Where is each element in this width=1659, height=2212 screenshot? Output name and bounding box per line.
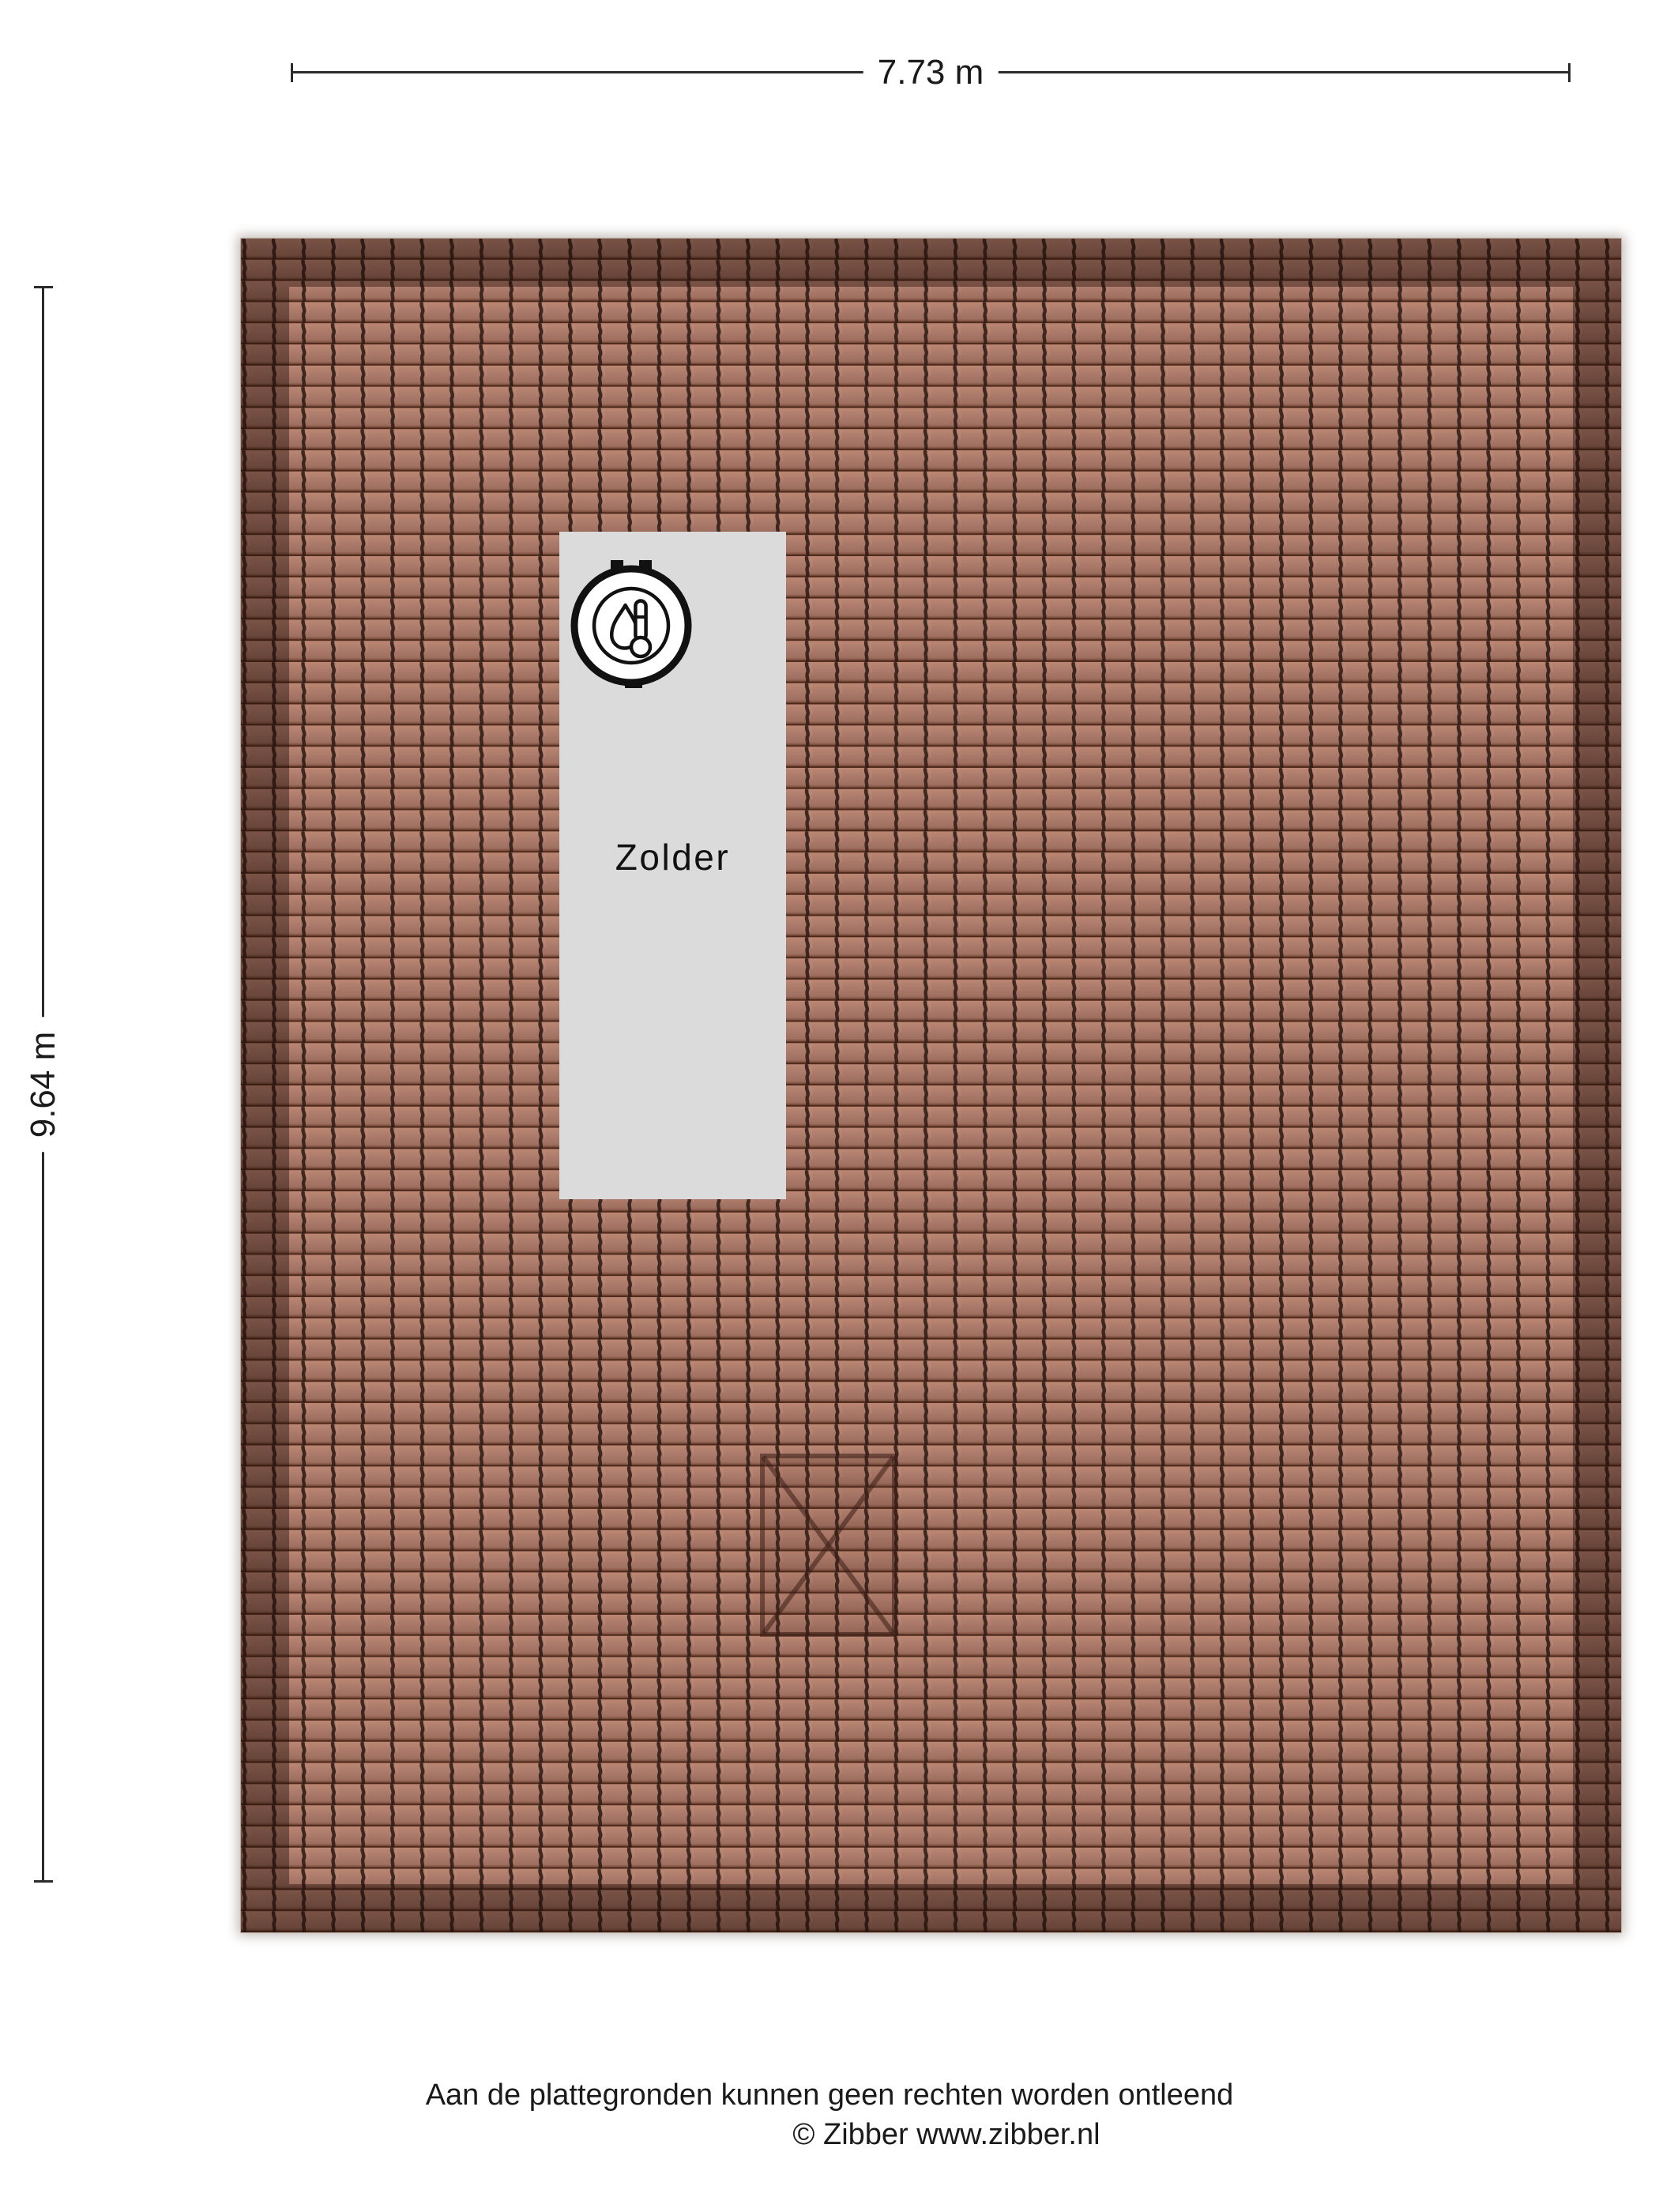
thermometer-stem-icon bbox=[635, 601, 645, 641]
width-dimension-label: 7.73 m bbox=[863, 53, 999, 92]
skylight-marker bbox=[760, 1454, 897, 1637]
height-dimension-label: 9.64 m bbox=[24, 1017, 63, 1152]
thermometer-bulb-icon bbox=[631, 638, 650, 656]
width-dimension: 7.73 m bbox=[291, 63, 1571, 82]
roof-edge-band bbox=[241, 239, 1621, 1932]
room-zolder: Zolder bbox=[559, 532, 786, 1199]
height-dimension: 9.64 m bbox=[34, 286, 53, 1883]
footer-disclaimer: Aan de plattegronden kunnen geen rechten… bbox=[0, 2078, 1659, 2112]
footer-copyright: © Zibber www.zibber.nl bbox=[792, 2118, 1100, 2152]
height-dimension-tick-top bbox=[34, 286, 53, 288]
room-label: Zolder bbox=[559, 836, 786, 878]
skylight-cross-icon bbox=[760, 1454, 897, 1637]
heating-boiler-icon bbox=[568, 553, 694, 692]
roof-surface bbox=[241, 239, 1621, 1932]
width-dimension-tick-left bbox=[291, 63, 293, 82]
height-dimension-tick-bottom bbox=[34, 1880, 53, 1883]
floorplan-page: 7.73 m 9.64 m bbox=[0, 0, 1659, 2212]
width-dimension-tick-right bbox=[1568, 63, 1571, 82]
